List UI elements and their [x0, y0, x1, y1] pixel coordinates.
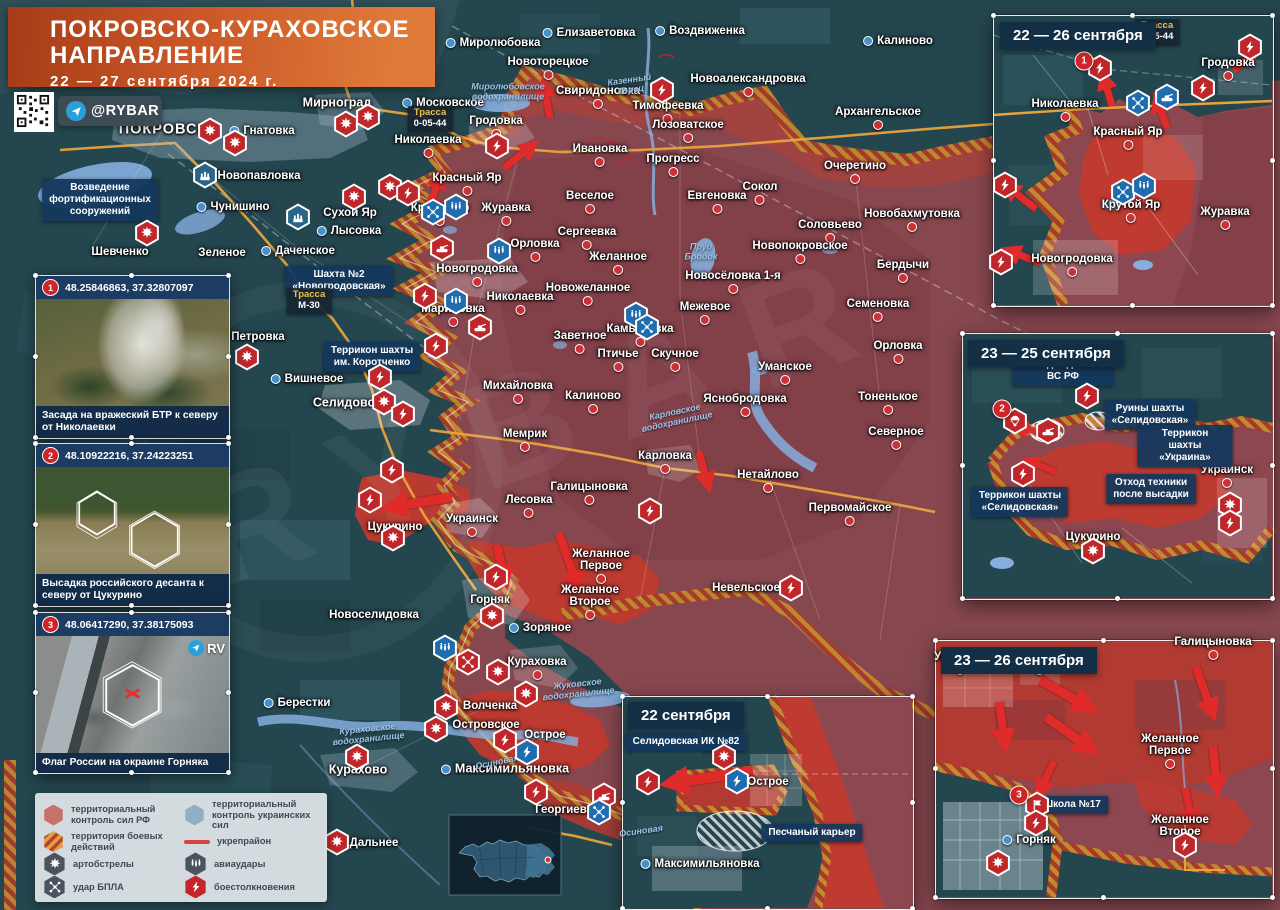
- frame-handle: [991, 158, 996, 163]
- legend-swatch-uav: [43, 875, 66, 898]
- frame-handle: [129, 435, 134, 440]
- map-infographic: RYBAR ПОКРОВСКО-КУРАХОВСКОЕ НАПРАВЛЕНИЕ …: [0, 0, 1280, 910]
- legend-label: боестолкновения: [214, 882, 295, 893]
- legend-item: территориальный контроль сил РФ: [43, 799, 178, 831]
- legend-swatch-battle: [43, 831, 64, 852]
- map-title-line1: ПОКРОВСКО-КУРАХОВСКОЕ: [50, 17, 435, 43]
- frame-handle: [33, 354, 38, 359]
- telegram-icon: [188, 640, 204, 656]
- photo-number-badge: 3: [42, 616, 59, 633]
- frame-handle: [226, 770, 231, 775]
- frame-handle: [933, 895, 938, 900]
- target-hex-outline: [36, 467, 229, 574]
- legend-label: территория боевых действий: [71, 831, 178, 852]
- frame-handle: [33, 690, 38, 695]
- legend-item: удар БПЛА: [43, 875, 178, 898]
- frame-handle: [1130, 303, 1135, 308]
- frame-handle: [765, 694, 770, 699]
- frame-handle: [226, 522, 231, 527]
- frame-handle: [620, 800, 625, 805]
- frame-handle: [1270, 766, 1275, 771]
- legend-item: артобстрелы: [43, 852, 178, 875]
- photo-image: [36, 467, 229, 574]
- legend-label: авиаудары: [214, 859, 265, 870]
- inset-3-title: 23 — 26 сентября: [941, 647, 1097, 674]
- frame-handle: [1270, 895, 1275, 900]
- frame-handle: [129, 273, 134, 278]
- frame-handle: [960, 331, 965, 336]
- rv-watermark: RV: [188, 640, 225, 656]
- photo-caption: Высадка российского десанта к северу от …: [36, 574, 229, 606]
- frame-handle: [960, 463, 965, 468]
- legend-swatch-zone-ua: [184, 805, 205, 826]
- legend-item: территория боевых действий: [43, 831, 178, 852]
- legend-item: территориальный контроль украинских сил: [184, 799, 319, 831]
- ukraine-minimap: [449, 815, 561, 895]
- frame-handle: [33, 610, 38, 615]
- frame-handle: [991, 13, 996, 18]
- inset-2-frame: [962, 333, 1274, 600]
- frame-handle: [910, 800, 915, 805]
- frame-handle: [33, 435, 38, 440]
- frame-handle: [910, 906, 915, 910]
- frame-handle: [1270, 638, 1275, 643]
- date-range: 22 — 27 сентября 2024 г.: [50, 73, 435, 90]
- map-title-line2: НАПРАВЛЕНИЕ: [50, 43, 435, 69]
- frame-handle: [620, 694, 625, 699]
- frame-handle: [226, 603, 231, 608]
- frame-handle: [1115, 331, 1120, 336]
- photo-coordinates: 48.25846863, 37.32807097: [65, 282, 193, 294]
- legend-label: артобстрелы: [73, 859, 134, 870]
- frame-handle: [960, 596, 965, 601]
- frame-handle: [129, 610, 134, 615]
- frame-handle: [1101, 895, 1106, 900]
- frame-handle: [33, 441, 38, 446]
- frame-handle: [910, 694, 915, 699]
- photo-image: [36, 299, 229, 406]
- legend-item: боестолкновения: [184, 875, 319, 898]
- title-banner: ПОКРОВСКО-КУРАХОВСКОЕ НАПРАВЛЕНИЕ 22 — 2…: [8, 7, 435, 87]
- telegram-icon: [66, 101, 86, 121]
- photo-caption: Засада на вражеский БТР к северу от Нико…: [36, 406, 229, 438]
- frame-handle: [1270, 463, 1275, 468]
- legend-label: укрепрайон: [217, 836, 271, 847]
- legend-label: удар БПЛА: [73, 882, 124, 893]
- frame-handle: [33, 273, 38, 278]
- frame-handle: [226, 435, 231, 440]
- frame-handle: [1101, 638, 1106, 643]
- frame-handle: [226, 690, 231, 695]
- photo-coordinates: 48.10922216, 37.24223251: [65, 450, 193, 462]
- inset-1-frame: [993, 15, 1274, 307]
- photo-card-header: 148.25846863, 37.32807097: [36, 276, 229, 299]
- frame-handle: [1270, 303, 1275, 308]
- photo-number-badge: 1: [42, 279, 59, 296]
- legend-swatch-clash: [184, 875, 207, 898]
- frame-handle: [1270, 331, 1275, 336]
- legend-item: укрепрайон: [184, 831, 319, 852]
- frame-handle: [33, 770, 38, 775]
- frame-handle: [933, 638, 938, 643]
- frame-handle: [933, 766, 938, 771]
- frame-handle: [1115, 596, 1120, 601]
- frame-handle: [129, 770, 134, 775]
- photo-card-header: 248.10922216, 37.24223251: [36, 444, 229, 467]
- frame-handle: [991, 303, 996, 308]
- inset-1-title: 22 — 26 сентября: [1000, 22, 1156, 49]
- frame-handle: [226, 441, 231, 446]
- photo-card: 348.06417290, 37.38175093RVФлаг России н…: [35, 612, 230, 774]
- frame-handle: [226, 273, 231, 278]
- brand-name: @RYBAR: [91, 103, 159, 119]
- frame-handle: [1270, 13, 1275, 18]
- qr-code: [14, 92, 54, 132]
- frame-handle: [1130, 13, 1135, 18]
- photo-image: RV: [36, 636, 229, 753]
- frame-handle: [765, 906, 770, 910]
- legend-label: территориальный контроль украинских сил: [212, 799, 319, 831]
- frame-handle: [226, 610, 231, 615]
- photo-coordinates: 48.06417290, 37.38175093: [65, 619, 193, 631]
- legend-swatch-zone-ru: [43, 805, 64, 826]
- photo-card: 148.25846863, 37.32807097Засада на враже…: [35, 275, 230, 439]
- legend-item: авиаудары: [184, 852, 319, 875]
- inset-3-frame: [935, 640, 1274, 899]
- frame-handle: [129, 603, 134, 608]
- inset-4-title: 22 сентября: [628, 702, 744, 729]
- legend-swatch-art: [43, 852, 66, 875]
- frame-handle: [129, 441, 134, 446]
- photo-card: 248.10922216, 37.24223251Высадка российс…: [35, 443, 230, 607]
- telegram-badge: @RYBAR: [58, 96, 162, 126]
- frame-handle: [33, 603, 38, 608]
- photo-number-badge: 2: [42, 447, 59, 464]
- legend-swatch-avia: [184, 852, 207, 875]
- frame-handle: [1270, 158, 1275, 163]
- photo-card-header: 348.06417290, 37.38175093: [36, 613, 229, 636]
- inset-2-title: 23 — 25 сентября: [968, 340, 1124, 367]
- frame-handle: [1270, 596, 1275, 601]
- frame-handle: [620, 906, 625, 910]
- frame-handle: [226, 354, 231, 359]
- frame-handle: [33, 522, 38, 527]
- legend-label: территориальный контроль сил РФ: [71, 804, 178, 825]
- legend-swatch-fort-line: [184, 840, 210, 844]
- legend-panel: территориальный контроль сил РФтерритори…: [35, 793, 327, 902]
